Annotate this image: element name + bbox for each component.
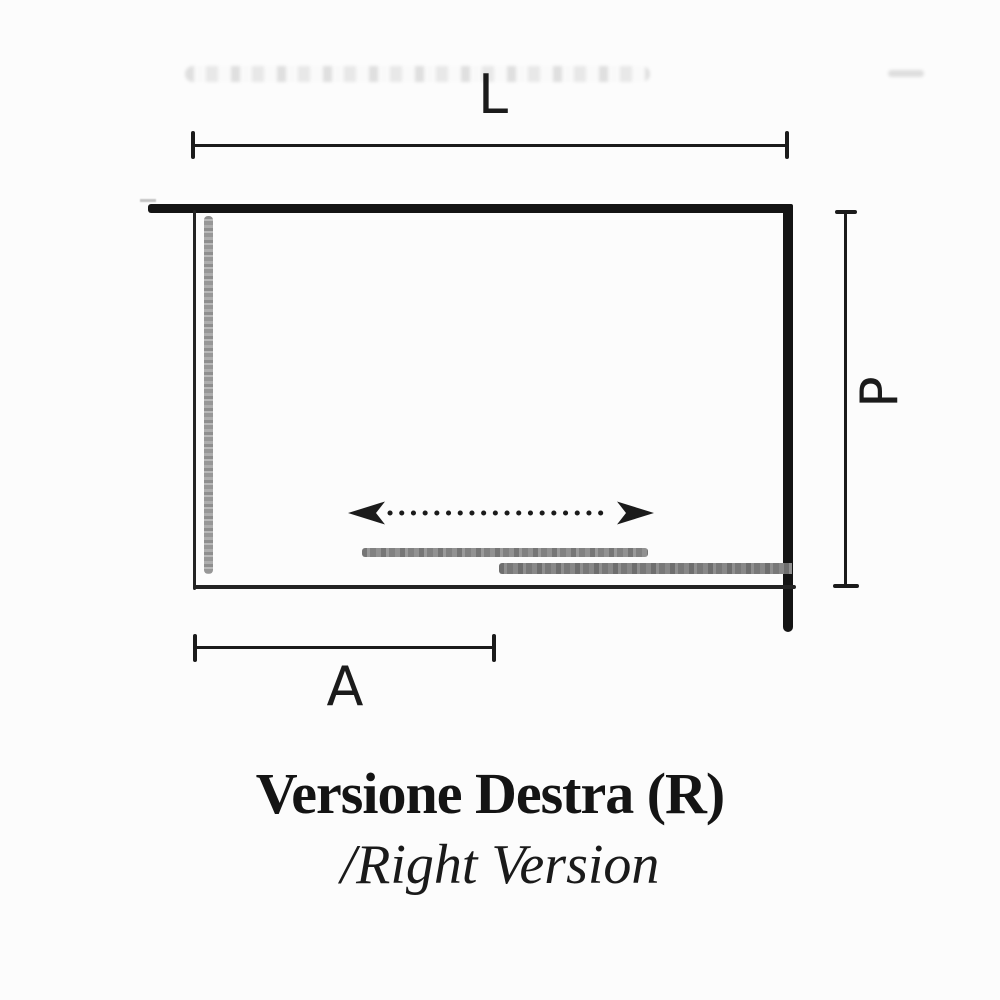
sliding-door-panel-outer bbox=[362, 548, 648, 557]
arrowhead-right-icon bbox=[617, 502, 654, 525]
enclosure-bottom-edge bbox=[193, 585, 796, 589]
dimension-a-label: A bbox=[310, 660, 380, 714]
dimension-p-label: P bbox=[848, 360, 912, 424]
fixed-panel-left-frame bbox=[193, 210, 196, 590]
dimension-a-line bbox=[195, 646, 495, 649]
fixed-panel-left-glass bbox=[204, 216, 213, 574]
arrowhead-left-icon bbox=[348, 502, 385, 525]
sliding-door-panel-inner bbox=[499, 563, 792, 574]
shower-enclosure-plan-diagram: L P A Versione Destra (R) /Right Version bbox=[0, 0, 1000, 1000]
dimension-l-tick-right bbox=[785, 131, 789, 159]
scan-artifact-edge bbox=[140, 199, 156, 202]
scan-artifact-dash bbox=[888, 70, 924, 77]
dimension-a-tick-right bbox=[492, 634, 496, 662]
slide-direction-arrow-icon bbox=[348, 500, 654, 526]
dimension-p-tick-bottom bbox=[833, 584, 859, 588]
dimension-l-label: L bbox=[458, 68, 528, 122]
scan-artifact-band bbox=[185, 66, 650, 82]
dimension-l-line bbox=[193, 144, 788, 147]
caption-subtitle: /Right Version bbox=[10, 835, 990, 897]
wall-top bbox=[148, 204, 793, 213]
dimension-p-line bbox=[844, 213, 847, 587]
caption-title: Versione Destra (R) bbox=[0, 762, 980, 826]
